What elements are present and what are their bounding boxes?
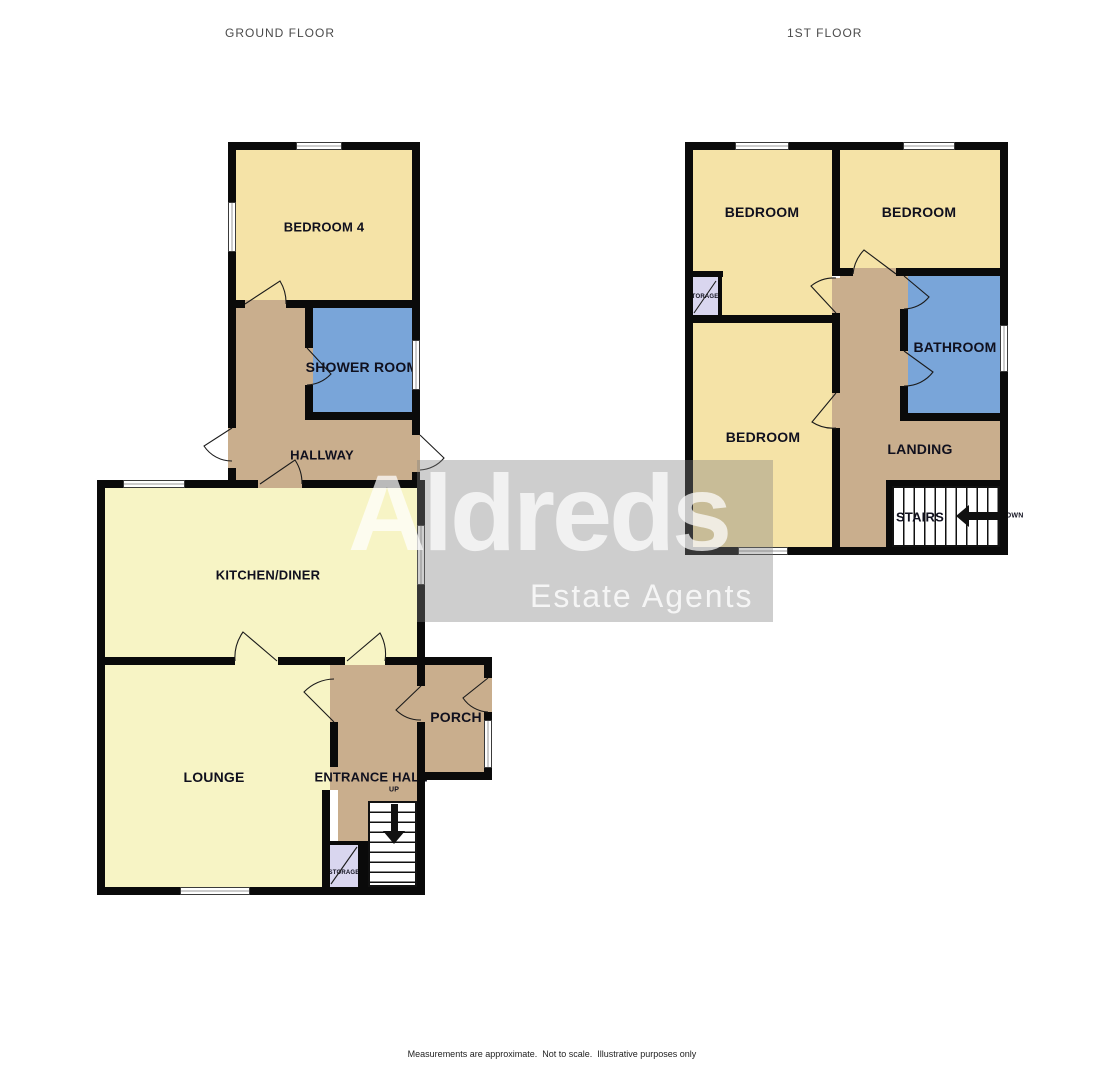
room-label: LANDING	[887, 441, 952, 457]
window	[735, 142, 789, 150]
window	[123, 480, 185, 488]
wall	[286, 300, 412, 308]
wall	[97, 480, 105, 665]
door-threshold	[417, 686, 425, 722]
room-label: BEDROOM 4	[284, 220, 365, 235]
door-threshold	[258, 480, 302, 488]
wall	[412, 142, 420, 340]
door-threshold	[853, 268, 896, 276]
window	[903, 142, 955, 150]
door-threshold	[900, 276, 908, 309]
room-storage-ground	[330, 845, 358, 887]
door-threshold	[900, 351, 908, 386]
footer-line1: Measurements are approximate. Not to sca…	[0, 1049, 1104, 1060]
window	[1000, 325, 1008, 372]
footer-disclaimer: Measurements are approximate. Not to sca…	[0, 1026, 1104, 1080]
wall	[788, 547, 1008, 555]
room-hallway-upper	[236, 308, 305, 420]
wall	[886, 480, 1000, 486]
wall	[1000, 142, 1008, 325]
stairs-direction-arrow	[969, 512, 1000, 520]
wall	[886, 486, 892, 547]
wall	[718, 277, 722, 322]
wall	[412, 390, 420, 435]
door-threshold	[345, 657, 385, 665]
window	[296, 142, 342, 150]
window	[228, 202, 236, 252]
stairs-arrow-head	[383, 831, 405, 844]
room-label: STAIRS	[896, 510, 944, 525]
wall	[417, 772, 492, 780]
wall	[305, 412, 412, 420]
wall	[228, 252, 236, 428]
door-threshold	[228, 428, 236, 468]
window	[412, 340, 420, 390]
wall	[97, 657, 105, 895]
wall	[322, 790, 330, 887]
watermark-brand-text: Aldreds	[348, 462, 729, 565]
wall	[97, 657, 235, 665]
wall	[900, 386, 908, 413]
wall	[900, 413, 1000, 421]
wall	[278, 657, 345, 665]
room-label: BATHROOM	[914, 339, 997, 355]
wall	[484, 657, 492, 678]
room-label: ENTRANCE HALL	[314, 770, 427, 785]
wall	[832, 313, 840, 393]
wall	[305, 308, 313, 348]
wall	[417, 722, 425, 887]
wall	[330, 722, 338, 767]
window	[484, 720, 492, 768]
door-threshold	[235, 657, 278, 665]
room-label: STORAGE	[329, 870, 360, 876]
room-label: BEDROOM	[726, 429, 801, 445]
room-label: SHOWER ROOM	[306, 359, 419, 375]
door-threshold	[245, 300, 286, 308]
wall	[832, 142, 840, 268]
wall	[305, 385, 313, 412]
door-threshold	[484, 678, 492, 712]
watermark-tagline-text: Estate Agents	[530, 578, 753, 615]
door-threshold	[832, 393, 840, 428]
wall	[832, 428, 840, 547]
wall	[228, 142, 296, 150]
wall	[896, 268, 1008, 276]
wall	[417, 657, 492, 665]
wall	[250, 887, 425, 895]
ground-floor-title: GROUND FLOOR	[225, 26, 335, 40]
wall	[484, 712, 492, 720]
room-label: UP	[389, 787, 399, 794]
wall	[228, 300, 245, 308]
door-threshold	[330, 665, 338, 722]
wall	[900, 309, 908, 351]
wall	[832, 268, 853, 276]
wall	[97, 887, 180, 895]
room-label: HALLWAY	[290, 448, 354, 463]
room-landing-strip	[840, 276, 900, 413]
stairs-direction-arrow	[391, 804, 398, 831]
room-label: KITCHEN/DINER	[216, 568, 320, 583]
wall	[358, 841, 368, 887]
window	[180, 887, 250, 895]
wall	[342, 142, 420, 150]
room-label: BEDROOM	[882, 204, 957, 220]
wall	[789, 142, 903, 150]
wall	[228, 142, 236, 202]
wall	[1000, 372, 1008, 555]
first-floor-title: 1ST FLOOR	[787, 26, 862, 40]
stairs-arrow-head	[956, 505, 969, 527]
room-label: PORCH	[430, 709, 482, 725]
wall	[685, 315, 832, 323]
floorplan-canvas: GROUND FLOOR 1ST FLOOR BEDROOM 4SHOWER R…	[0, 0, 1104, 1080]
room-label: BEDROOM	[725, 204, 800, 220]
room-landing-lower	[840, 480, 886, 547]
room-label: LOUNGE	[183, 769, 244, 785]
door-threshold	[832, 278, 840, 313]
